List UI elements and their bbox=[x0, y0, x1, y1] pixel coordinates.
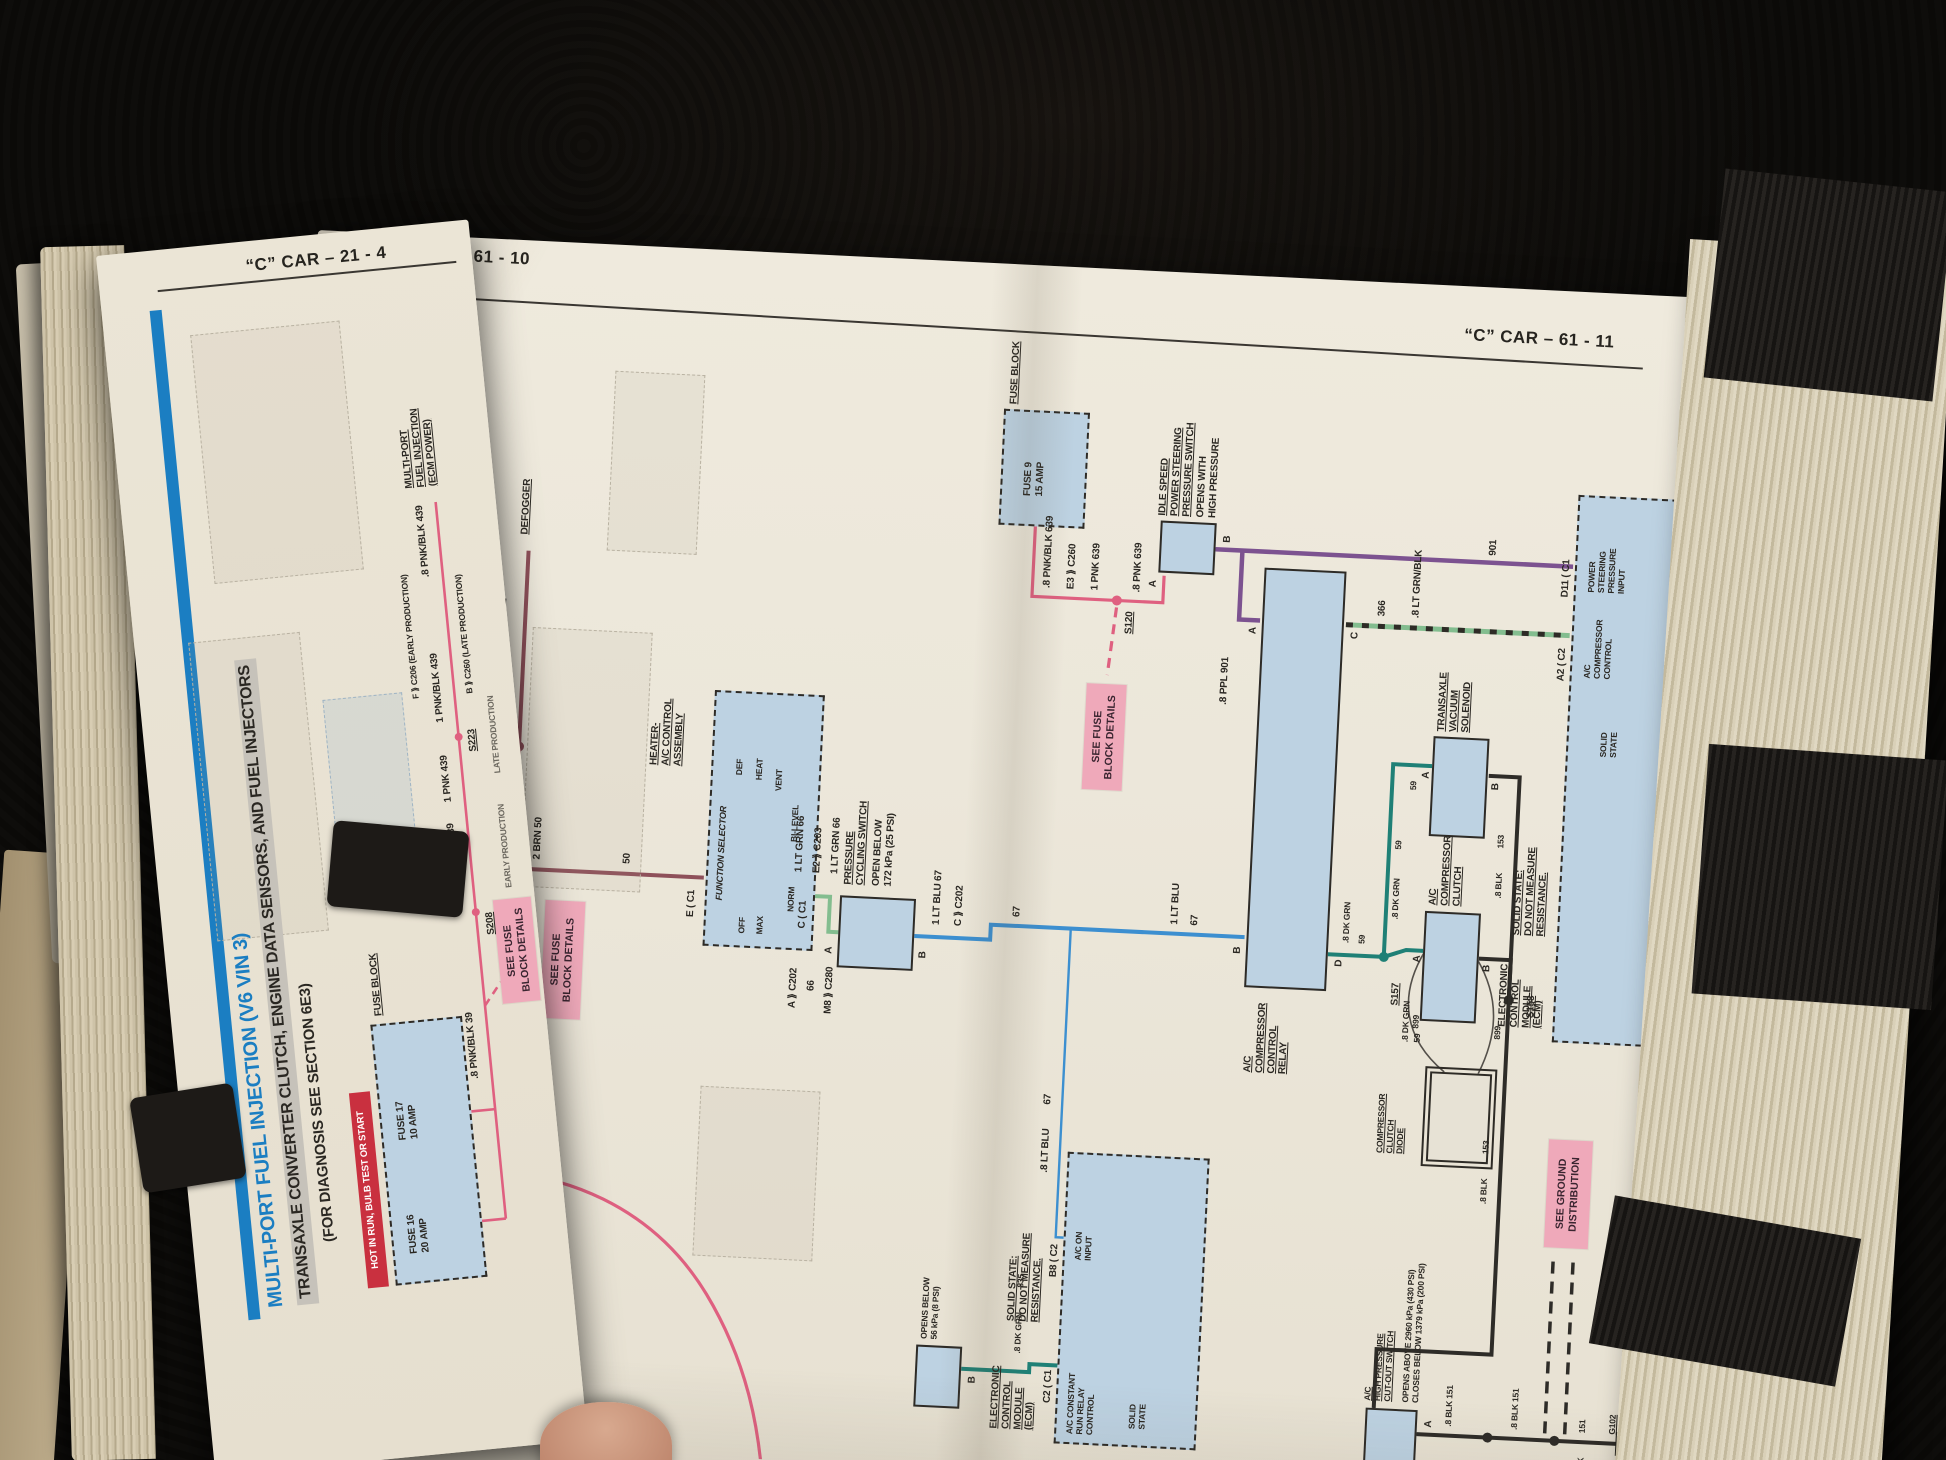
diagram-label: A bbox=[1247, 627, 1259, 635]
diagram-label: 153 bbox=[1495, 835, 1506, 849]
diagram-label: .8 DK GRN bbox=[1012, 1312, 1024, 1354]
diagram-label: A ⟫ C202 bbox=[787, 968, 801, 1009]
diagram-label: E2 ⟫ C203 bbox=[811, 827, 825, 873]
diagram-label: 2 BRN 50 bbox=[532, 817, 546, 860]
diagram-label: .8 LT BLU bbox=[1039, 1128, 1053, 1173]
diagram-label: S208 bbox=[484, 912, 498, 936]
diagram-label: FUSE 16 20 AMP bbox=[405, 1213, 432, 1254]
diagram-label: OPEN BELOW 172 kPa (25 PSI) bbox=[871, 812, 898, 887]
black-index-tab bbox=[327, 820, 470, 918]
diagram-label: 66 bbox=[805, 980, 817, 991]
diagram-label: .8 PPL 901 bbox=[1218, 657, 1232, 705]
diagram-label: 1 PNK 439 bbox=[438, 755, 454, 803]
diagram-label: SOLID STATE bbox=[1598, 732, 1619, 759]
diagram-label: A bbox=[1423, 1420, 1435, 1428]
diagram-label: .8 LT GRN/BLK bbox=[1410, 550, 1425, 619]
diagram-label: FUNCTION SELECTOR bbox=[714, 806, 729, 901]
diagram-label: SOLID STATE bbox=[1126, 1403, 1147, 1430]
diagram-label: .8 PNK/BLK 639 bbox=[1041, 516, 1056, 589]
diagram-label: 366 bbox=[1376, 600, 1389, 617]
black-index-tab bbox=[129, 1082, 247, 1193]
diagram-label: D bbox=[1333, 959, 1345, 967]
diagram-label: FUSE 9 15 AMP bbox=[1022, 461, 1047, 497]
diagram-label: FUSE BLOCK bbox=[1008, 341, 1023, 405]
diagram-label: 1 PNK/BLK 439 bbox=[428, 653, 447, 723]
diagram-label: 1 PNK 639 bbox=[1089, 543, 1103, 591]
page-edge-ink-band bbox=[1692, 744, 1946, 1010]
diagram-label: A2 ( C2 bbox=[1555, 648, 1568, 682]
diagram-label: M8 ⟫ C280 bbox=[822, 967, 836, 1015]
diagram-label: .8 DK GRN bbox=[1340, 902, 1352, 944]
diagram-label: VENT bbox=[773, 769, 784, 791]
diagram-label: A bbox=[823, 947, 835, 955]
diagram-label: TRANSAXLE VACUUM SOLENOID bbox=[1436, 672, 1474, 733]
diagram-label: C2 ( C1 bbox=[1042, 1370, 1055, 1404]
diagram-label: D11 ( C1 bbox=[1560, 559, 1574, 597]
diagram-label: 835 bbox=[1015, 1274, 1026, 1288]
diagram-label: .8 DK GRN bbox=[1390, 878, 1402, 920]
diagram-label: .8 PNK/BLK 439 bbox=[414, 505, 433, 578]
diagram-label: G102 bbox=[1607, 1414, 1618, 1434]
diagram-label: 59 bbox=[1408, 781, 1418, 791]
diagram-label: S223 bbox=[466, 728, 480, 752]
diagram-label: 899 bbox=[1492, 1026, 1503, 1040]
diagram-label: POWER STEERING PRESSURE INPUT bbox=[1586, 547, 1628, 594]
diagram-label: HEAT bbox=[754, 758, 765, 780]
diagram-label: COMPRESSOR CLUTCH DIODE bbox=[1374, 1093, 1407, 1154]
diagram-label: B bbox=[1481, 965, 1493, 973]
diagram-label: 1 LT GRN 66 bbox=[829, 817, 844, 874]
diagram-label: ELECTRONIC CONTROL MODULE (ECM) bbox=[988, 1365, 1038, 1430]
diagram-label: ELECTRONIC CONTROL MODULE (ECM) bbox=[1496, 964, 1546, 1029]
diagram-label: .8 BLK 151 bbox=[1443, 1385, 1455, 1427]
diagram-label: S120 bbox=[1123, 611, 1136, 634]
diagram-label: 59 bbox=[1393, 840, 1403, 850]
diagram-label: 901 bbox=[1487, 539, 1500, 556]
diagram-label: A/C COMPRESSOR CLUTCH bbox=[1427, 835, 1466, 907]
diagram-label: DEFOGGER bbox=[519, 479, 534, 535]
diagram-label: .8 BLK bbox=[1493, 872, 1504, 898]
diagram-label: .8 PNK/BLK 39 bbox=[464, 1012, 482, 1080]
diagram-label: 1 LT BLU bbox=[1169, 883, 1183, 925]
diagram-label: OPENS WITH HIGH PRESSURE bbox=[1195, 437, 1222, 518]
diagram-label: A bbox=[1148, 580, 1160, 588]
diagram-label: 59 bbox=[1412, 1033, 1422, 1043]
diagram-label: 59 bbox=[1356, 935, 1366, 945]
diagram-label: A/C COMPRESSOR CONTROL RELAY bbox=[1242, 1002, 1293, 1074]
diagram-label: FUSE 17 10 AMP bbox=[394, 1099, 421, 1140]
diagram-label: B ⟫ C260 (LATE PRODUCTION) bbox=[453, 574, 475, 694]
diagram-label: .8 PNK 639 bbox=[1131, 543, 1145, 593]
diagram-label: .8 BLK bbox=[1478, 1178, 1489, 1204]
diagram-label: 1 LT GRN 66 bbox=[793, 816, 808, 873]
diagram-label: A/C COMPRESSOR CONTROL bbox=[1582, 619, 1615, 680]
diagram-label: 67 bbox=[1189, 915, 1201, 926]
diagram-label: OFF bbox=[736, 917, 747, 934]
diagram-label: EARLY PRODUCTION bbox=[495, 803, 513, 888]
diagram-label: MAX bbox=[754, 916, 765, 935]
diagram-label: C bbox=[1349, 632, 1361, 640]
diagram-label: B bbox=[1490, 783, 1502, 791]
diagram-label: F ⟫ C206 (EARLY PRODUCTION) bbox=[399, 574, 421, 699]
diagram-label: .8 BLK 151 bbox=[1509, 1388, 1521, 1430]
diagram-label: 1 LT BLU 67 bbox=[931, 870, 945, 925]
diagram-label: 67 bbox=[1042, 1094, 1054, 1105]
diagram-label: B bbox=[1232, 946, 1244, 954]
photo-scene: “C” CAR – 61 - 10 “C” CAR – 61 - 11 bbox=[0, 0, 1946, 1460]
diagram-label: HEATER- A/C CONTROL ASSEMBLY bbox=[648, 698, 687, 767]
diagram-label: B bbox=[917, 951, 929, 959]
diagram-label: MULTI-PORT FUEL INJECTION (ECM POWER) bbox=[396, 407, 439, 489]
diagram-label: DEF bbox=[734, 759, 745, 776]
diagram-label: A/C ON INPUT bbox=[1073, 1232, 1094, 1262]
diagram-label: A bbox=[1412, 955, 1424, 963]
diagram-label: IDLE SPEED POWER STEERING PRESSURE SWITC… bbox=[1157, 421, 1197, 517]
diagram-label: E3 ⟫ C260 bbox=[1065, 544, 1079, 590]
diagram-label: S157 bbox=[1389, 983, 1402, 1006]
diagram-label: 50 bbox=[621, 853, 633, 864]
page-edge-ink-band bbox=[1704, 169, 1946, 402]
diagram-label: LATE PRODUCTION bbox=[485, 695, 503, 774]
diagram-label: PRESSURE CYCLING SWITCH bbox=[843, 800, 871, 885]
diagram-label: B bbox=[1222, 536, 1234, 544]
diagram-label: SOLID STATE: DO NOT MEASURE RESISTANCE. bbox=[1511, 846, 1551, 936]
diagram-label: 151 bbox=[1577, 1419, 1588, 1433]
diagram-label: FUSE BLOCK bbox=[367, 953, 385, 1017]
diagram-label: 899 bbox=[1410, 1015, 1421, 1029]
diagram-label: B bbox=[966, 1376, 978, 1384]
diagram-label: 153 bbox=[1480, 1140, 1491, 1154]
diagram-label: A bbox=[1421, 771, 1433, 779]
diagram-label: 67 bbox=[1011, 906, 1023, 917]
diagram-label: E ( C1 bbox=[685, 890, 698, 918]
diagram-label: C ⟫ C202 bbox=[953, 885, 967, 926]
diagram-label: NORM bbox=[785, 886, 796, 912]
diagram-label: A/C HIGH PRESSURE CUT-OUT SWITCH bbox=[1362, 1330, 1395, 1402]
diagram-label: A/C CONSTANT RUN RELAY CONTROL bbox=[1064, 1373, 1097, 1436]
diagram-label: B8 ( C2 bbox=[1048, 1244, 1061, 1278]
diagram-label: OPENS ABOVE 2960 kPa (430 PSI) CLOSES BE… bbox=[1400, 1263, 1427, 1404]
diagram-label: OPENS BELOW 56 kPa (8 PSI) bbox=[919, 1277, 942, 1339]
diagram-label: C ( C1 bbox=[796, 901, 809, 929]
